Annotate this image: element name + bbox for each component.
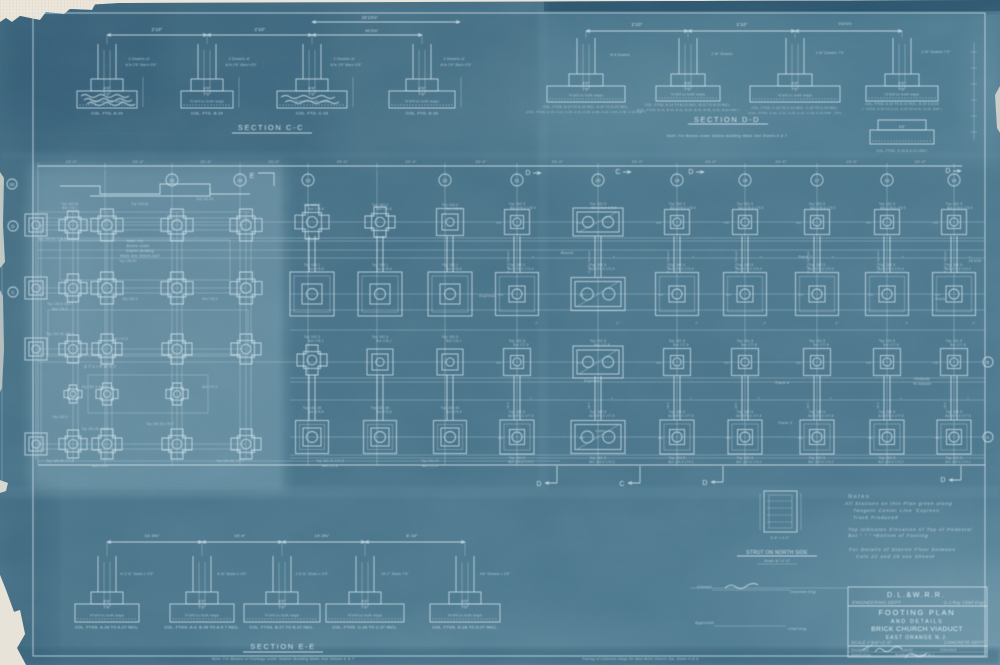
- svg-text:S T A I R W A Y: S T A I R W A Y: [84, 364, 117, 369]
- svg-text:+: +: [532, 255, 534, 259]
- svg-text:4'0": 4'0": [278, 599, 286, 604]
- svg-text:Bot 476.6 177.5: Bot 476.6 177.5: [878, 414, 904, 418]
- svg-text:Cast: Cast: [595, 428, 605, 433]
- svg-text:½"ø½'cc both ways: ½"ø½'cc both ways: [348, 614, 382, 618]
- svg-text:B: B: [986, 360, 989, 365]
- svg-text:Top 182.0 ½ 183: Top 182.0 ½ 183: [82, 385, 109, 389]
- svg-text:COL. FTG. C-19: COL. FTG. C-19: [296, 111, 329, 116]
- svg-text:6-¾" Stubs x 3'6": 6-¾" Stubs x 3'6": [217, 572, 247, 576]
- svg-text:4'6": 4'6": [866, 361, 872, 365]
- svg-text:Top 182.81: Top 182.81: [196, 197, 214, 201]
- svg-text:4'0": 4'0": [103, 86, 111, 91]
- svg-text:D: D: [688, 169, 693, 176]
- svg-text:Bot 175.8: Bot 175.8: [308, 410, 323, 414]
- svg-text:Bot 177.8: Bot 177.8: [950, 343, 965, 347]
- svg-text:Scale ¾"=1'-0": Scale ¾"=1'-0": [764, 559, 791, 563]
- svg-text:COL. FTGS. D-15 & D-22 ONLY: COL. FTGS. D-15 & D-22 ONLY: [876, 149, 928, 153]
- svg-text:2-⅜" Dowels 7'6": 2-⅜" Dowels 7'6": [815, 51, 845, 55]
- svg-text:4'0": 4'0": [361, 599, 369, 604]
- svg-text:G.J.Ray Chief Engr: G.J.Ray Chief Engr: [944, 600, 986, 605]
- svg-text:+: +: [967, 397, 969, 401]
- svg-text:4'0": 4'0": [418, 86, 426, 91]
- svg-text:COL. FTGS. B-14 TO B-13 INCL.: COL. FTGS. B-14 TO B-13 INCL. B-22 TO B-…: [645, 103, 731, 107]
- svg-text:4'0": 4'0": [308, 86, 316, 91]
- svg-text:4'6": 4'6": [724, 221, 730, 225]
- svg-text:20'-0": 20'-0": [552, 159, 564, 164]
- svg-text:STRUT ON NORTH SIDE: STRUT ON NORTH SIDE: [746, 550, 808, 556]
- svg-text:Track: Track: [935, 296, 947, 301]
- svg-text:Top indicates Elevation of Top: Top indicates Elevation of Top of Pedest…: [848, 527, 972, 533]
- svg-text:Top 182.0: Top 182.0: [52, 415, 68, 419]
- svg-text:9'0": 9'0": [658, 293, 664, 297]
- svg-text:CONCRETE DEPT: CONCRETE DEPT: [944, 640, 984, 645]
- svg-text:13'-3⅛": 13'-3⅛": [145, 533, 160, 538]
- svg-text:20'-0": 20'-0": [632, 159, 644, 164]
- svg-text:Bot 176.5: Bot 176.5: [52, 307, 67, 311]
- svg-text:Bot 169.6 174.2: Bot 169.6 174.2: [668, 460, 694, 464]
- svg-text:(⁽῾ FTGS. D-15 TO D-21, D-25 T: (⁽῾ FTGS. D-15 TO D-21, D-25 TO D-31, D-…: [862, 107, 942, 111]
- svg-text:½"ø½'cc both ways: ½"ø½'cc both ways: [671, 93, 705, 97]
- svg-text:D: D: [945, 168, 950, 175]
- svg-text:30: 30: [9, 182, 15, 187]
- svg-text:Bot 177.8: Bot 177.8: [594, 343, 609, 347]
- svg-text:Bot 178.6 178.5: Bot 178.6 178.5: [880, 206, 906, 210]
- svg-text:2'10": 2'10": [255, 27, 266, 32]
- svg-text:Tracing of Concrete Dwgs for N: Tracing of Concrete Dwgs for New Brick C…: [582, 657, 699, 661]
- svg-text:Bot 169.6 174.2: Bot 169.6 174.2: [878, 460, 904, 464]
- svg-text:Bot 178.8: Bot 178.8: [446, 207, 461, 211]
- svg-text:7'0": 7'0": [461, 605, 469, 610]
- svg-text:4'6": 4'6": [724, 361, 730, 365]
- svg-text:2 Dowels of: 2 Dowels of: [333, 57, 356, 61]
- svg-text:28'6: 28'6: [806, 402, 810, 409]
- svg-text:Bot 169.6 174.2: Bot 169.6 174.2: [589, 460, 615, 464]
- svg-text:20'-0": 20'-0": [475, 159, 487, 164]
- svg-text:½"ø½'cc both ways: ½"ø½'cc both ways: [569, 94, 603, 98]
- svg-text:2 Dowels of: 2 Dowels of: [228, 57, 251, 61]
- svg-text:Note: For Beams of Footings un: Note: For Beams of Footings under Statio…: [212, 657, 355, 661]
- svg-text:+: +: [832, 255, 834, 259]
- svg-text:Note: For: Note: For: [127, 239, 144, 243]
- svg-text:2″: 2″: [616, 321, 619, 325]
- svg-text:Track 4: Track 4: [775, 380, 790, 385]
- svg-text:4'0": 4'0": [898, 81, 906, 86]
- svg-text:½"ø½'cc both ways: ½"ø½'cc both ways: [778, 94, 812, 98]
- svg-text:4'6": 4'6": [935, 436, 941, 440]
- svg-text:+: +: [613, 255, 615, 259]
- svg-text:Bot 178.6 178.5: Bot 178.6 178.5: [670, 206, 696, 210]
- svg-text:COL. FTG. A-19: COL. FTG. A-19: [91, 111, 123, 116]
- svg-text:Top 183.81 178.5: Top 183.81 178.5: [38, 237, 66, 241]
- svg-text:½"ø½'cc both ways: ½"ø½'cc both ways: [885, 93, 919, 97]
- svg-text:+: +: [692, 255, 694, 259]
- svg-text:Track 3: Track 3: [778, 420, 793, 425]
- svg-text:¾"ø 2'6" Bars+3'6": ¾"ø 2'6" Bars+3'6": [125, 63, 157, 67]
- svg-text:28'6: 28'6: [876, 402, 880, 409]
- svg-text:N 28'6 Spread: N 28'6 Spread: [943, 251, 947, 273]
- svg-text:Chief Eng.: Chief Eng.: [788, 627, 808, 631]
- svg-text:14'-3⅛": 14'-3⅛": [315, 533, 330, 538]
- svg-text:+: +: [900, 397, 902, 401]
- svg-text:2″: 2″: [695, 321, 698, 325]
- svg-text:4'6": 4'6": [726, 436, 732, 440]
- svg-text:Top 183.6 183.7: Top 183.6 183.7: [47, 302, 73, 306]
- svg-text:2″: 2″: [535, 321, 538, 325]
- svg-text:½"ø½'cc both ways: ½"ø½'cc both ways: [190, 100, 224, 104]
- svg-text:FOOTING PLAN: FOOTING PLAN: [879, 608, 956, 617]
- svg-text:7'0": 7'0": [684, 87, 692, 92]
- svg-text:N 28'6 Spread: N 28'6 Spread: [734, 251, 738, 273]
- svg-text:4'6": 4'6": [656, 361, 662, 365]
- svg-text:D.L.&W.R.R.: D.L.&W.R.R.: [887, 590, 945, 599]
- svg-text:COL. FTGS. A-14 TO A-13 INCL.: COL. FTGS. A-14 TO A-13 INCL. A-22 TO A-…: [543, 105, 629, 109]
- svg-text:Notes: Notes: [848, 494, 870, 500]
- svg-text:¾"ø 2'6" Bars+3'6": ¾"ø 2'6" Bars+3'6": [225, 63, 257, 67]
- svg-text:Top 182.46 172.8: Top 182.46 172.8: [81, 427, 109, 431]
- svg-text:20'-0": 20'-0": [405, 159, 417, 164]
- svg-text:Bot 175.8: Bot 175.8: [376, 410, 391, 414]
- svg-text:20'-0": 20'-0": [705, 159, 717, 164]
- svg-text:EAST ORANGE N.J.: EAST ORANGE N.J.: [886, 635, 948, 641]
- svg-text:7'0": 7'0": [198, 605, 206, 610]
- svg-text:C: C: [11, 290, 14, 295]
- svg-text:Bot 178.6 178.5: Bot 178.6 178.5: [591, 206, 617, 210]
- svg-text:Checked: Checked: [940, 648, 957, 652]
- svg-text:9'0": 9'0": [868, 293, 874, 297]
- svg-text:20'-0": 20'-0": [337, 159, 349, 164]
- svg-text:Bot 178.6 178.5: Bot 178.6 178.5: [947, 206, 973, 210]
- svg-text:COL. FTGS. A-14 TO D-13 INCL.: COL. FTGS. A-14 TO D-13 INCL. D-22 & D-2…: [865, 102, 939, 106]
- svg-text:Bot 178.8: Bot 178.8: [308, 267, 323, 271]
- svg-text:2'10": 2'10": [152, 27, 163, 32]
- svg-text:Bot 178.6 172.4: Bot 178.6 172.4: [668, 267, 694, 271]
- svg-text:Bot 476.6 177.5: Bot 476.6 177.5: [736, 414, 762, 418]
- svg-text:8'-10": 8'-10": [406, 533, 418, 538]
- svg-text:D: D: [11, 224, 14, 229]
- svg-text:2-½" Dowels 7'6": 2-½" Dowels 7'6": [921, 50, 951, 54]
- svg-text:4'0": 4'0": [198, 599, 206, 604]
- svg-text:4'6": 4'6": [577, 361, 583, 365]
- svg-text:4'6": 4'6": [798, 436, 804, 440]
- svg-text:C: C: [619, 481, 624, 488]
- svg-text:Approved: Approved: [694, 620, 714, 625]
- svg-text:7'0": 7'0": [898, 87, 906, 92]
- svg-text:COL. FTG. B-19: COL. FTG. B-19: [191, 111, 223, 116]
- svg-text:Cols 22 and 28 see Sheet#: Cols 22 and 28 see Sheet#: [856, 554, 935, 560]
- svg-text:20'-0": 20'-0": [846, 159, 858, 164]
- svg-text:½"ø½'cc both ways: ½"ø½'cc both ways: [265, 614, 299, 618]
- svg-text:COL. FTGS. C-28 TO C-27 INCL.: COL. FTGS. C-28 TO C-27 INCL.: [332, 625, 397, 630]
- svg-text:2-⅜" Dowels: 2-⅜" Dowels: [710, 52, 732, 56]
- svg-text:Bot 178.1: Bot 178.1: [376, 339, 391, 343]
- svg-text:4'0": 4'0": [461, 599, 469, 604]
- svg-text:Varies: Varies: [838, 21, 852, 26]
- svg-text:D: D: [940, 477, 945, 484]
- svg-text:9'0": 9'0": [498, 293, 504, 297]
- svg-text:BRICK CHURCH VIADUCT: BRICK CHURCH VIADUCT: [871, 626, 963, 633]
- svg-text:Bot 178.6 172.4: Bot 178.6 172.4: [945, 267, 971, 271]
- svg-text:Bot 177.8: Bot 177.8: [813, 343, 828, 347]
- svg-text:7'0": 7'0": [791, 87, 799, 92]
- svg-text:D: D: [536, 481, 541, 488]
- svg-text:7'0": 7'0": [278, 605, 286, 610]
- svg-text:4'0": 4'0": [203, 86, 211, 91]
- svg-text:+: +: [902, 255, 904, 259]
- svg-text:Top 182.46 183.7: Top 182.46 183.7: [46, 332, 74, 336]
- svg-text:20'-0": 20'-0": [133, 159, 145, 164]
- svg-text:15'-4": 15'-4": [234, 533, 246, 538]
- svg-text:5'-6" x 3'-0": 5'-6" x 3'-0": [771, 536, 790, 540]
- svg-text:COL. FTGS. A-28 TO A-27 INCL.: COL. FTGS. A-28 TO A-27 INCL.: [75, 625, 140, 630]
- svg-text:+: +: [760, 255, 762, 259]
- svg-text:2″: 2″: [905, 321, 908, 325]
- svg-text:Bot 177.8: Bot 177.8: [673, 343, 688, 347]
- svg-text:Bot 175.8: Bot 175.8: [446, 410, 461, 414]
- svg-text:4'6": 4'6": [868, 436, 874, 440]
- svg-text:4'6": 4'6": [577, 221, 583, 225]
- svg-text:N 28'6 Spread: N 28'6 Spread: [666, 251, 670, 273]
- svg-text:C: C: [615, 169, 620, 176]
- svg-text:AND DETAILS: AND DETAILS: [891, 619, 944, 625]
- svg-text:Bot 476.6 177.5: Bot 476.6 177.5: [808, 414, 834, 418]
- svg-text:Bot 178.8: Bot 178.8: [446, 267, 461, 271]
- svg-text:Designed: Designed: [851, 648, 869, 652]
- svg-text:4'6": 4'6": [496, 361, 502, 365]
- svg-text:SECTION C-C: SECTION C-C: [238, 123, 304, 132]
- svg-text:4'6": 4'6": [866, 221, 872, 225]
- svg-text:Bot 178.1: Bot 178.1: [308, 339, 323, 343]
- svg-text:7'0": 7'0": [418, 92, 426, 97]
- svg-text:2″: 2″: [835, 321, 838, 325]
- svg-text:(COL. FTGS. C-15, C-21, C-25,: (COL. FTGS. C-15, C-21, C-25, C-31, C-35…: [748, 111, 841, 115]
- svg-text:Bot 178.8: Bot 178.8: [308, 207, 323, 211]
- svg-text:All Stations on this Plan give: All Stations on this Plan given along: [844, 501, 952, 507]
- svg-text:4'6": 4'6": [933, 361, 939, 365]
- svg-text:20'-0": 20'-0": [66, 159, 78, 164]
- svg-text:Top 183.81: Top 183.81: [119, 259, 137, 263]
- svg-text:4'6": 4'6": [579, 436, 585, 440]
- svg-text:Bot 476.6 177.5: Bot 476.6 177.5: [589, 414, 615, 418]
- svg-text:2 Dowels of: 2 Dowels of: [443, 57, 466, 61]
- svg-text:Bot 178.6 172.4: Bot 178.6 172.4: [878, 267, 904, 271]
- svg-text:Bot 178.6 172.4: Bot 178.6 172.4: [736, 267, 762, 271]
- svg-text:Bot 178.5: Bot 178.5: [202, 297, 217, 301]
- svg-text:(COL. FTGS. B-15, B-19, B-21,: (COL. FTGS. B-15, B-19, B-21, B-25, B-31…: [637, 108, 740, 112]
- svg-text:SCALE 1"&¾"=1'-0": SCALE 1"&¾"=1'-0": [851, 640, 892, 645]
- svg-text:Station Building: Station Building: [126, 249, 154, 253]
- svg-text:Bot 172.8: Bot 172.8: [112, 337, 127, 341]
- svg-text:9'0": 9'0": [579, 293, 585, 297]
- svg-text:Express: Express: [479, 293, 495, 298]
- svg-text:N 28'6 Spread: N 28'6 Spread: [587, 251, 591, 273]
- svg-text:+: +: [690, 397, 692, 401]
- svg-text:+: +: [530, 397, 532, 401]
- svg-text:Bot 178.6 178.5: Bot 178.6 178.5: [738, 206, 764, 210]
- svg-text:2'10": 2'10": [737, 22, 748, 27]
- svg-text:Bot 178.6 172.4: Bot 178.6 172.4: [508, 267, 534, 271]
- svg-text:Bot 178.6 172.4: Bot 178.6 172.4: [808, 267, 834, 271]
- svg-text:4'6": 4'6": [496, 221, 502, 225]
- svg-text:16'10½: 16'10½: [969, 259, 982, 263]
- svg-text:20'-0": 20'-0": [915, 159, 927, 164]
- svg-text:Bot 178.8: Bot 178.8: [376, 267, 391, 271]
- svg-text:28'6: 28'6: [587, 402, 591, 409]
- svg-text:Bot 178.1: Bot 178.1: [446, 339, 461, 343]
- svg-text:2'10": 2'10": [632, 22, 643, 27]
- svg-text:Bot 178.6 172.4: Bot 178.6 172.4: [589, 267, 615, 271]
- svg-text:4'6": 4'6": [498, 436, 504, 440]
- svg-text:SECTION D-D: SECTION D-D: [694, 115, 760, 124]
- svg-text:7'0": 7'0": [361, 605, 369, 610]
- svg-text:20'10⅛": 20'10⅛": [362, 15, 379, 20]
- svg-text:4'-2-¾" Stubs x 3'6": 4'-2-¾" Stubs x 3'6": [120, 572, 154, 576]
- svg-text:COL. FTGS. A-4, B-28 TO A-5 7: COL. FTGS. A-4, B-28 TO A-5 7 INCL.: [164, 625, 239, 630]
- svg-text:Bot 174.0: Bot 174.0: [202, 385, 217, 389]
- svg-text:4'6": 4'6": [796, 221, 802, 225]
- svg-text:4'6": 4'6": [899, 125, 906, 129]
- svg-text:Express: Express: [584, 378, 600, 383]
- svg-text:20'-0": 20'-0": [775, 159, 787, 164]
- svg-text:⅜"ø Dowels: ⅜"ø Dowels: [610, 53, 630, 57]
- svg-text:COL. FTGS. D-28 TO D-27 INCL.: COL. FTGS. D-28 TO D-27 INCL.: [432, 625, 497, 630]
- svg-text:16-1" Stubs 7'6": 16-1" Stubs 7'6": [381, 572, 409, 576]
- svg-text:Bot 169.6 174.2: Bot 169.6 174.2: [808, 460, 834, 464]
- svg-text:28'6: 28'6: [666, 402, 670, 409]
- svg-text:N 28'6 Spread: N 28'6 Spread: [876, 251, 880, 273]
- svg-text:Bot 177.8: Bot 177.8: [883, 343, 898, 347]
- svg-text:Note: For Beams under Station: Note: For Beams under Station Building W…: [667, 134, 788, 138]
- svg-text:N 28'6 Spread: N 28'6 Spread: [506, 251, 510, 273]
- svg-text:Top 182.46 175.7: Top 182.46 175.7: [146, 422, 174, 426]
- svg-text:7'0": 7'0": [582, 87, 590, 92]
- svg-text:4'6": 4'6": [796, 361, 802, 365]
- svg-text:A: A: [986, 435, 989, 440]
- svg-text:28'6: 28'6: [506, 402, 510, 409]
- svg-text:Bot 476.6 177.5: Bot 476.6 177.5: [668, 414, 694, 418]
- svg-text:Bot 169.6 174.2: Bot 169.6 174.2: [945, 460, 971, 464]
- svg-text:Top 183.81: Top 183.81: [131, 202, 149, 206]
- svg-text:4'0": 4'0": [103, 599, 111, 604]
- svg-text:COL. FTG. D-19: COL. FTG. D-19: [406, 111, 439, 116]
- svg-text:To Indicate: To Indicate: [913, 382, 931, 386]
- svg-text:9'0": 9'0": [798, 293, 804, 297]
- svg-text:Bound: Bound: [561, 250, 574, 255]
- svg-text:28'6: 28'6: [943, 402, 947, 409]
- svg-text:Bot 177.8: Bot 177.8: [513, 343, 528, 347]
- svg-text:¾"ø 2'6" Bars+3'6": ¾"ø 2'6" Bars+3'6": [330, 63, 362, 67]
- svg-text:Bot 178.1: Bot 178.1: [62, 206, 77, 210]
- svg-text:Walls See Sheets E&T: Walls See Sheets E&T: [120, 254, 161, 258]
- svg-text:D: D: [702, 480, 707, 487]
- svg-text:2 Dowels of: 2 Dowels of: [128, 57, 151, 61]
- svg-text:4'6": 4'6": [658, 436, 664, 440]
- svg-text:For Details of Station Floor b: For Details of Station Floor between: [849, 547, 956, 553]
- svg-text:20'-0": 20'-0": [268, 159, 280, 164]
- svg-text:SECTION E-E: SECTION E-E: [250, 642, 316, 651]
- svg-text:½"ø½'cc both ways: ½"ø½'cc both ways: [90, 614, 124, 618]
- svg-text:2″: 2″: [972, 321, 975, 325]
- svg-text:Sheet Eng: Sheet Eng: [851, 653, 871, 657]
- svg-text:Bot 169.6 174.2: Bot 169.6 174.2: [736, 460, 762, 464]
- svg-text:D: D: [525, 170, 530, 177]
- svg-text:Pedestal: Pedestal: [914, 377, 930, 381]
- svg-text:Track Produced: Track Produced: [853, 515, 898, 521]
- svg-text:Bot 178.6 178.5: Bot 178.6 178.5: [510, 206, 536, 210]
- svg-text:7'0": 7'0": [103, 605, 111, 610]
- svg-text:(COL. FTGS. A-15, A-21, A-25,: (COL. FTGS. A-15, A-21, A-25, A-31, A-35…: [526, 110, 646, 114]
- svg-text:4'6": 4'6": [933, 221, 939, 225]
- svg-text:4¾" Dowels x 3'6": 4¾" Dowels x 3'6": [480, 572, 511, 576]
- svg-text:Bot 476.6 177.5: Bot 476.6 177.5: [508, 414, 534, 418]
- svg-text:2″: 2″: [763, 321, 766, 325]
- svg-text:Bot 177.8: Bot 177.8: [741, 343, 756, 347]
- svg-text:4'0": 4'0": [684, 81, 692, 86]
- svg-text:+: +: [758, 397, 760, 401]
- svg-text:7'0": 7'0": [308, 92, 316, 97]
- svg-text:2-6-¾" Stubs x 3'6": 2-6-¾" Stubs x 3'6": [295, 572, 329, 576]
- svg-text:Top 182.5: Top 182.5: [122, 297, 138, 301]
- svg-text:COL. FTGS. B-27 TO B-37 INCL.: COL. FTGS. B-27 TO B-37 INCL.: [249, 625, 314, 630]
- svg-text:+: +: [830, 397, 832, 401]
- svg-text:Bot “ “ “ •Bottom: Bot “ “ “ •Bottom of Footing: [848, 533, 928, 539]
- svg-text:¾"ø 2'6" Bars+3'6": ¾"ø 2'6" Bars+3'6": [440, 63, 472, 67]
- svg-text:20'-0": 20'-0": [200, 159, 212, 164]
- svg-text:Bot 476.6 177.5: Bot 476.6 177.5: [945, 414, 971, 418]
- svg-text:E: E: [250, 173, 255, 180]
- svg-text:4'0": 4'0": [582, 81, 590, 86]
- svg-text:Beams under: Beams under: [126, 244, 150, 248]
- svg-text:Concrete Eng.: Concrete Eng.: [790, 590, 817, 594]
- svg-text:ENGINEERING DEPT: ENGINEERING DEPT: [852, 600, 902, 605]
- svg-text:Tangent Center Line 'Express': Tangent Center Line 'Express': [853, 508, 941, 514]
- svg-text:4'6": 4'6": [656, 221, 662, 225]
- svg-text:90'3¾": 90'3¾": [365, 28, 379, 33]
- svg-text:7'0": 7'0": [203, 92, 211, 97]
- svg-text:Bot 178.8: Bot 178.8: [376, 207, 391, 211]
- svg-text:COL. FTGS. C-14 TO C-13 INCL.: COL. FTGS. C-14 TO C-13 INCL. C-22 TO C-…: [752, 106, 839, 110]
- svg-text:Bot 178.6 178.5: Bot 178.6 178.5: [810, 206, 836, 210]
- svg-text:+: +: [611, 397, 613, 401]
- svg-text:28'6: 28'6: [734, 402, 738, 409]
- svg-text:½"ø½'cc both ways: ½"ø½'cc both ways: [448, 614, 482, 618]
- svg-text:½"ø½'cc both ways: ½"ø½'cc both ways: [185, 614, 219, 618]
- svg-text:9'0": 9'0": [726, 293, 732, 297]
- svg-text:4'0": 4'0": [791, 81, 799, 86]
- svg-text:½"ø½'cc both ways: ½"ø½'cc both ways: [405, 100, 439, 104]
- svg-text:Track 1: Track 1: [798, 254, 812, 259]
